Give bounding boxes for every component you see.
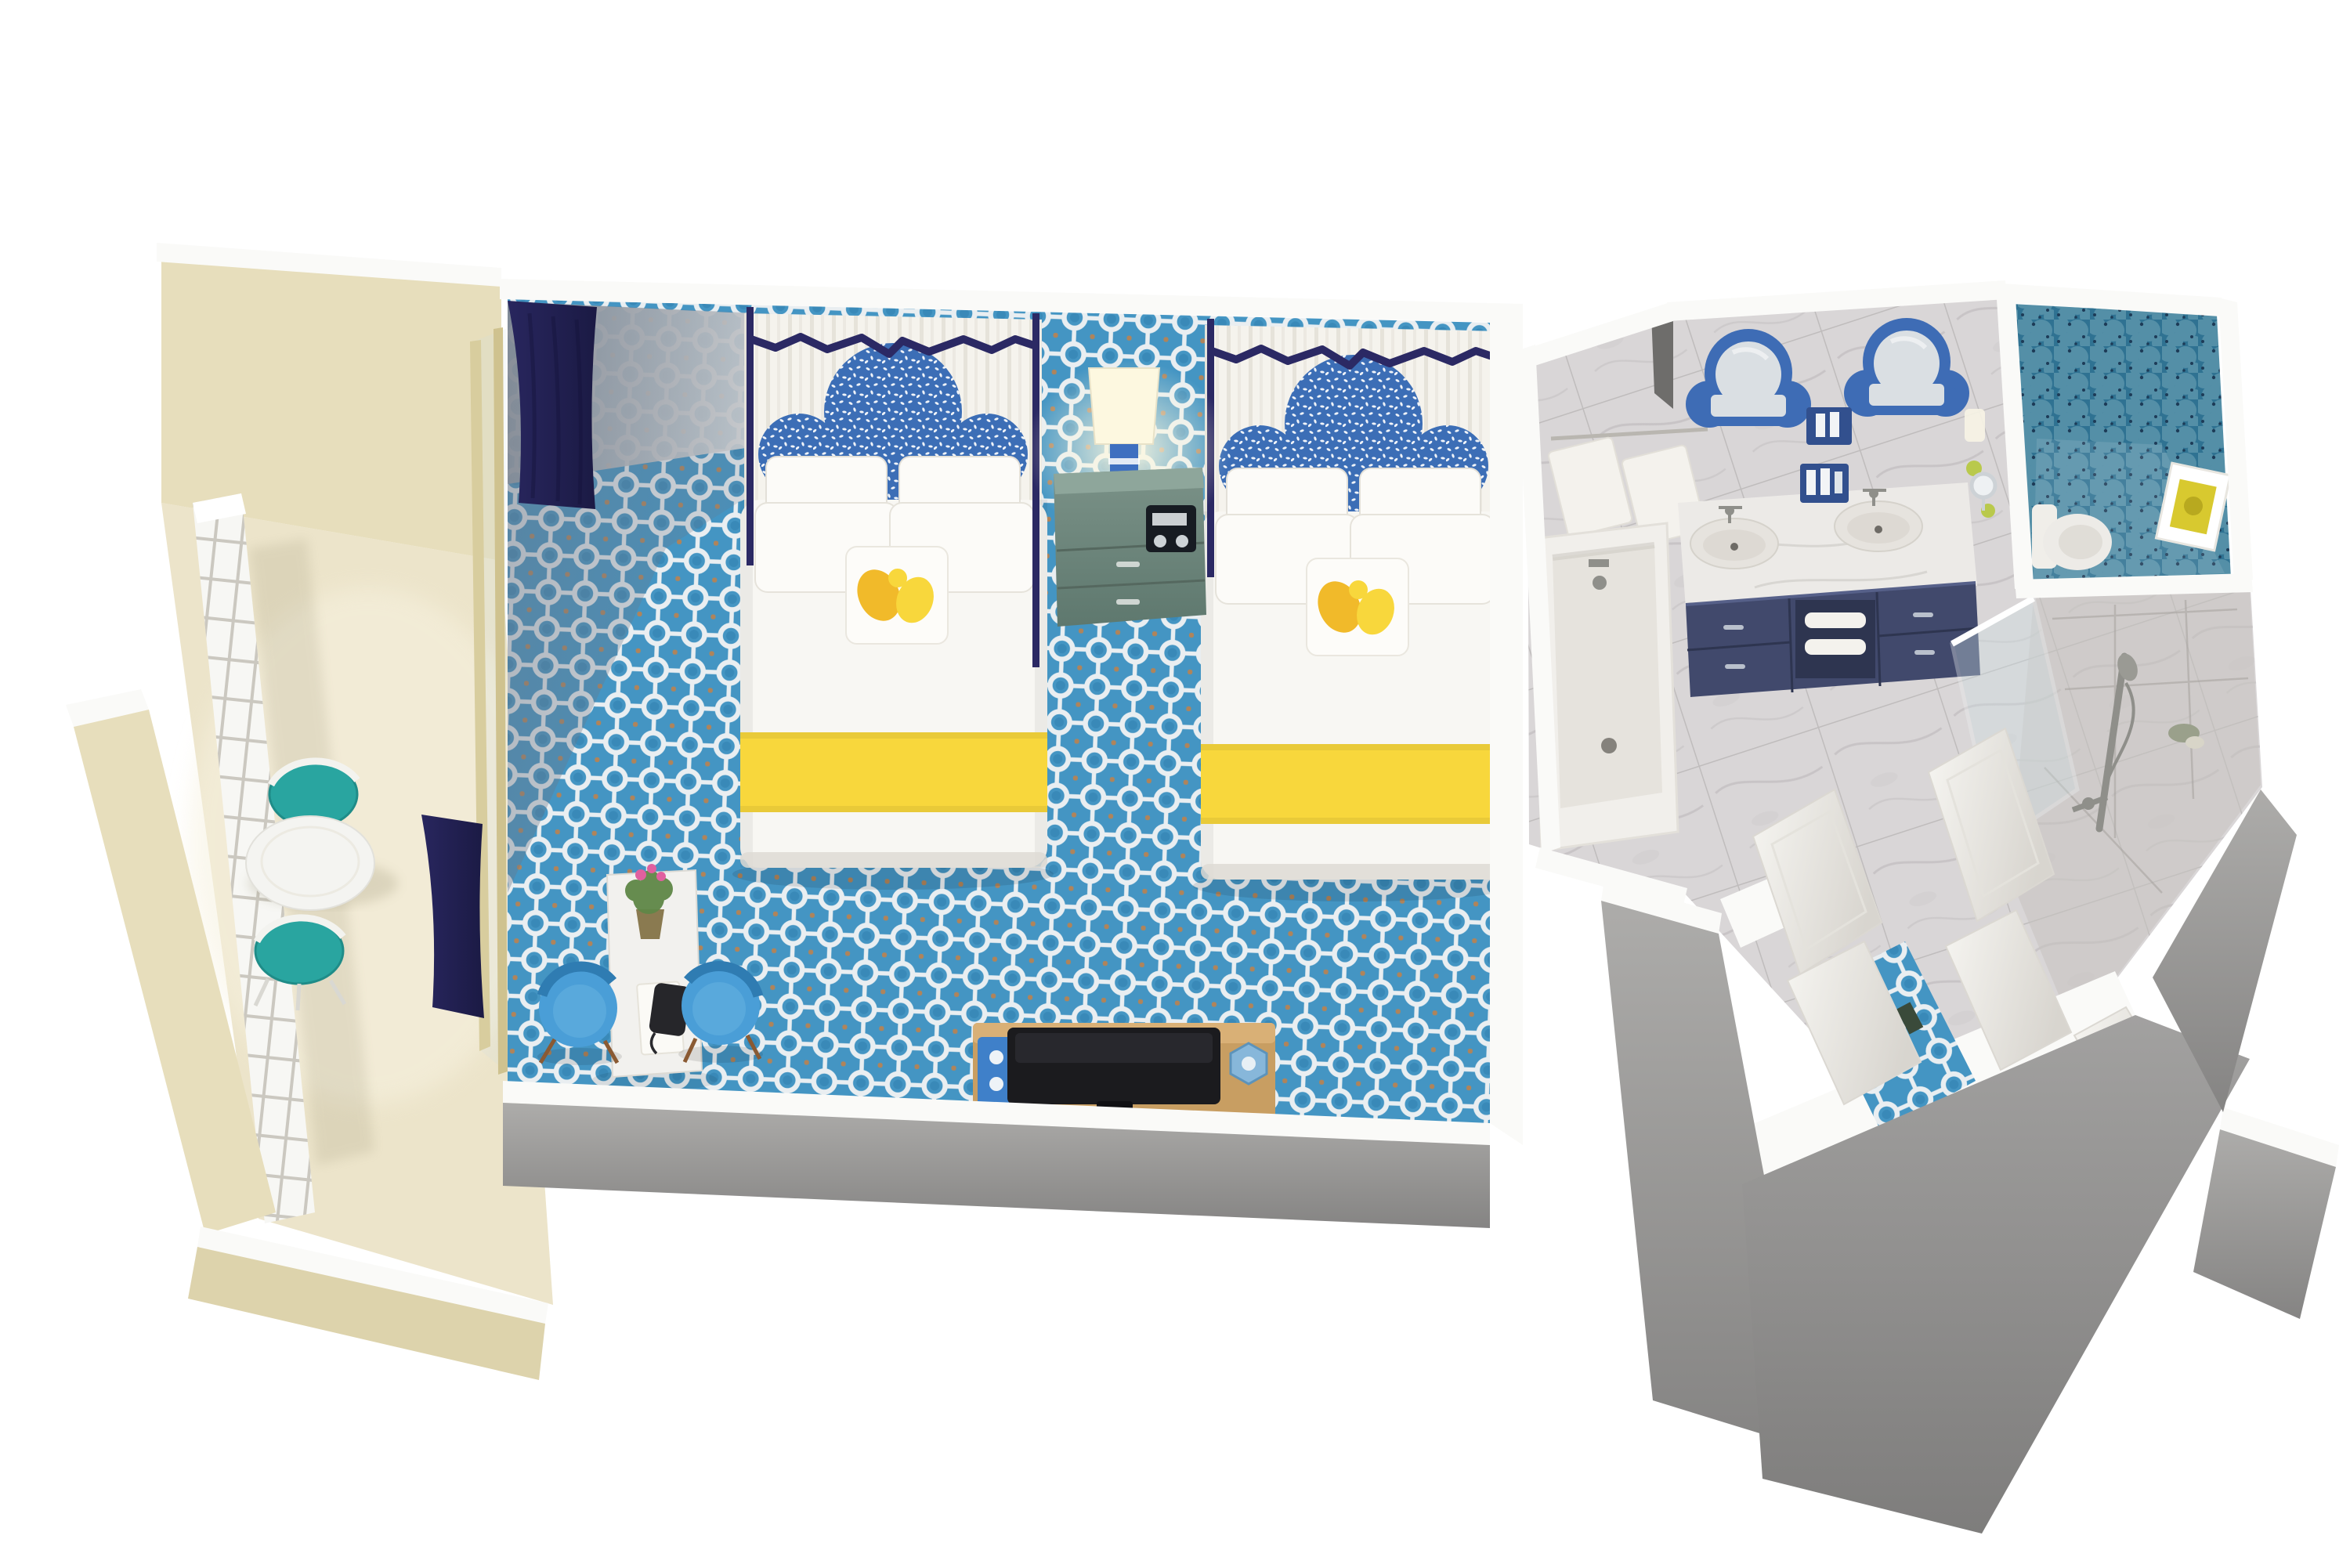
- bedroom-east-wall: [1490, 304, 1523, 1145]
- toilet-seat: [2059, 525, 2102, 559]
- television: [1007, 1028, 1220, 1113]
- tub-drain: [1601, 738, 1617, 753]
- gray-wall-south: [1742, 1015, 2250, 1534]
- chair-cushion: [692, 982, 746, 1035]
- floorplan-svg: [0, 0, 2350, 1568]
- tub-spout: [1589, 559, 1609, 567]
- canopy-bed-1: [732, 307, 1054, 890]
- nightstand-handle: [1116, 599, 1140, 605]
- clock-knob: [1154, 535, 1166, 547]
- between-mirror-caddy: [1806, 407, 1852, 445]
- navy-curtain-top: [508, 301, 597, 509]
- tv-gloss: [1015, 1033, 1213, 1063]
- tub-faucet: [1593, 576, 1607, 590]
- amenity-caddy: [1800, 464, 1849, 503]
- water-closet-group: [2012, 304, 2231, 583]
- alarm-clock: [1146, 505, 1196, 552]
- nightstand-group: [1026, 360, 1230, 627]
- clock-display: [1152, 513, 1187, 526]
- vanity-towel-shelf: [1795, 600, 1875, 678]
- nightstand-handle: [1116, 562, 1140, 567]
- canopy-bed-2: [1193, 319, 1514, 901]
- floorplan-render: [0, 0, 2350, 1568]
- bathroom-suite: [1517, 280, 2339, 1534]
- desk-chair-right: [678, 966, 763, 1063]
- desk-chair-left: [537, 966, 622, 1065]
- bathtub-inner: [1553, 545, 1662, 808]
- lamp-shade: [1089, 368, 1159, 444]
- clock-knob: [1176, 535, 1188, 547]
- ice-bucket: [1231, 1043, 1267, 1084]
- bedroom: [421, 279, 1523, 1228]
- wall-sconce: [1965, 409, 1985, 442]
- chair-cushion: [553, 985, 606, 1038]
